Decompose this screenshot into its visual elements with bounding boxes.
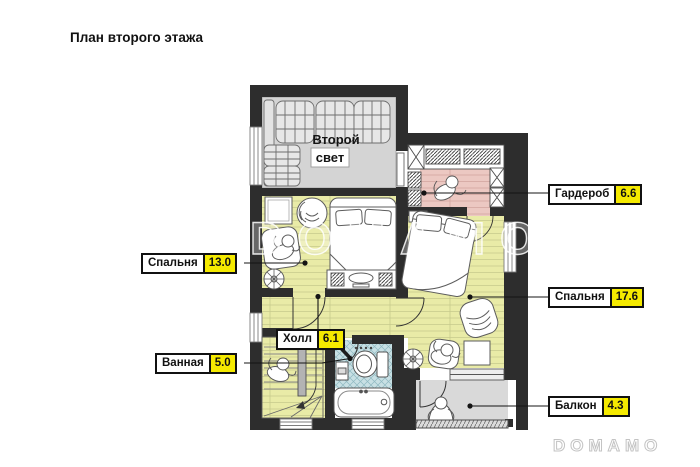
label-wardrobe-name: Гардероб — [550, 186, 614, 203]
bathtub — [334, 388, 394, 417]
plant — [403, 349, 423, 369]
label-bedroom-left-name: Спальня — [143, 255, 203, 272]
watermark-corner: DOMAMO — [553, 436, 662, 456]
label-bedroom-right-name: Спальня — [550, 289, 610, 306]
label-hall-name: Холл — [278, 331, 317, 348]
plant — [264, 269, 284, 289]
label-hall-area: 6.1 — [317, 331, 343, 348]
window-left-upper — [250, 127, 262, 185]
door-leaf-second-light — [397, 153, 404, 186]
shelf-unit — [408, 190, 421, 206]
desk-chair-with-person — [427, 338, 461, 370]
label-balcony: Балкон 4.3 — [548, 396, 630, 417]
window-bottom-left — [280, 419, 312, 429]
window-balcony — [450, 369, 504, 380]
stair-railing — [298, 344, 306, 396]
second-light-label-line2: свет — [316, 150, 344, 165]
label-balcony-area: 4.3 — [602, 398, 628, 415]
shelf-unit — [408, 172, 421, 188]
label-balcony-name: Балкон — [550, 398, 602, 415]
label-bathroom-name: Ванная — [157, 355, 209, 372]
window-bottom-right — [352, 419, 384, 429]
label-wardrobe-area: 6.6 — [614, 186, 640, 203]
window-left-lower — [250, 313, 262, 342]
closet-rail — [464, 149, 500, 164]
label-wardrobe: Гардероб 6.6 — [548, 184, 642, 205]
balcony-railing — [416, 420, 508, 428]
label-bedroom-right: Спальня 17.6 — [548, 287, 644, 308]
toilet — [353, 351, 388, 377]
label-bedroom-right-area: 17.6 — [610, 289, 642, 306]
watermark-center: DOMAMO — [250, 213, 550, 265]
bathroom-shelf — [336, 362, 348, 380]
label-hall: Холл 6.1 — [276, 329, 345, 350]
second-light-label-line1: Второй — [312, 132, 359, 147]
label-bathroom: Ванная 5.0 — [155, 353, 237, 374]
dresser-tv — [327, 270, 396, 289]
label-bedroom-left-area: 13.0 — [203, 255, 235, 272]
floor-plan-page: План второго этажа — [0, 0, 700, 467]
table — [464, 341, 490, 365]
label-bathroom-area: 5.0 — [209, 355, 235, 372]
closet-rail — [426, 149, 460, 164]
label-bedroom-left: Спальня 13.0 — [141, 253, 237, 274]
